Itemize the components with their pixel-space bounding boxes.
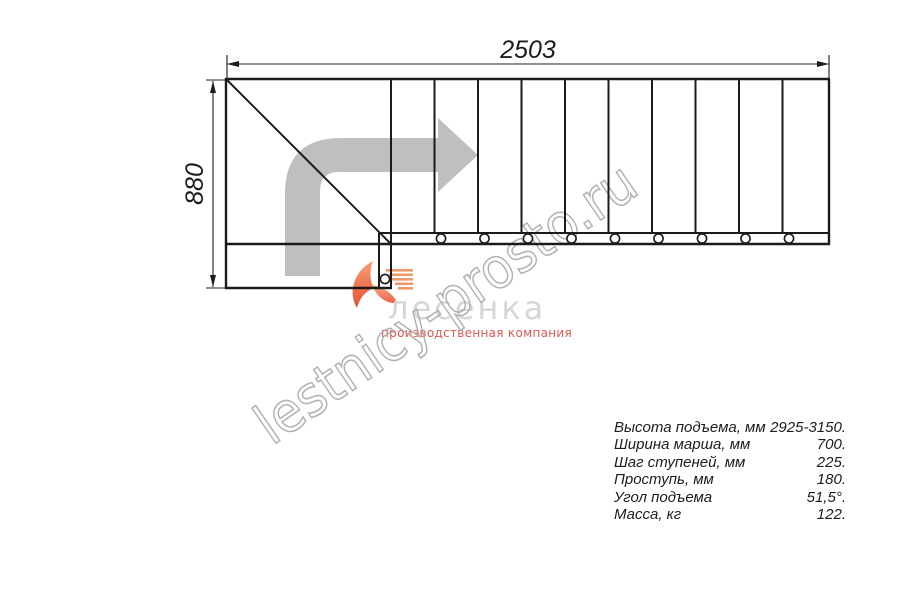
fastener-circle xyxy=(567,234,576,243)
spec-value: 51,5°. xyxy=(807,489,846,506)
fastener-circle xyxy=(610,234,619,243)
spec-label: Масса, кг xyxy=(614,506,681,523)
logo-swoosh-icon xyxy=(353,261,374,308)
tread-lines xyxy=(435,79,783,233)
fastener-circle xyxy=(784,234,793,243)
spec-row: Проступь, мм 180. xyxy=(614,471,846,488)
dimension-label-top: 2503 xyxy=(499,36,556,64)
spec-row: Высота подъема, мм 2925-3150. xyxy=(614,419,846,436)
spec-row: Масса, кг 122. xyxy=(614,506,846,523)
spec-label: Угол подъема xyxy=(614,489,712,506)
spec-value: 122. xyxy=(817,506,846,523)
dimension-arrowhead-top xyxy=(210,81,216,93)
fastener-circle xyxy=(436,234,445,243)
spec-row: Ширина марша, мм 700. xyxy=(614,436,846,453)
direction-arrow xyxy=(285,118,478,276)
spec-row: Угол подъема 51,5°. xyxy=(614,489,846,506)
spec-label: Проступь, мм xyxy=(614,471,714,488)
specs-table: Высота подъема, мм 2925-3150. Ширина мар… xyxy=(614,419,846,523)
spec-label: Высота подъема, мм xyxy=(614,419,766,436)
stair-plan-page: лесенка производственная компания lestni… xyxy=(0,0,900,600)
fastener-circle xyxy=(380,274,389,283)
spec-value: 2925-3150. xyxy=(770,419,846,436)
fastener-circle xyxy=(741,234,750,243)
spec-value: 180. xyxy=(817,471,846,488)
dimension-arrowhead-left xyxy=(227,61,239,67)
spec-value: 225. xyxy=(817,454,846,471)
spec-value: 700. xyxy=(817,436,846,453)
fastener-circle xyxy=(654,234,663,243)
spec-label: Шаг ступеней, мм xyxy=(614,454,745,471)
fastener-circle xyxy=(523,234,532,243)
dimension-label-left: 880 xyxy=(181,163,209,205)
dimension-arrowhead-right xyxy=(817,61,829,67)
dimension-left xyxy=(206,80,226,288)
spec-label: Ширина марша, мм xyxy=(614,436,750,453)
spec-row: Шаг ступеней, мм 225. xyxy=(614,454,846,471)
fastener-circle xyxy=(697,234,706,243)
fastener-circle xyxy=(480,234,489,243)
dimension-arrowhead-bottom xyxy=(210,275,216,287)
